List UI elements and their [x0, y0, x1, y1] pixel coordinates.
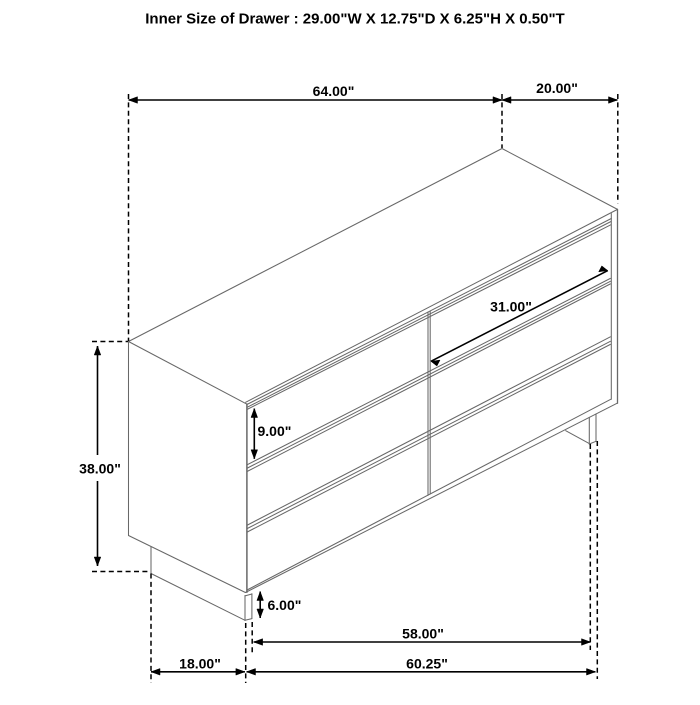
svg-text:20.00": 20.00"	[536, 80, 578, 96]
svg-text:Inner Size of Drawer : 29.00"W: Inner Size of Drawer : 29.00"W X 12.75"D…	[145, 11, 564, 28]
svg-text:60.25": 60.25"	[406, 656, 448, 672]
svg-text:31.00": 31.00"	[490, 299, 532, 315]
svg-text:64.00": 64.00"	[313, 83, 355, 99]
svg-text:9.00": 9.00"	[258, 423, 292, 439]
svg-text:18.00": 18.00"	[179, 656, 221, 672]
svg-text:58.00": 58.00"	[402, 626, 444, 642]
svg-text:6.00": 6.00"	[268, 597, 302, 613]
svg-text:38.00": 38.00"	[79, 461, 121, 477]
